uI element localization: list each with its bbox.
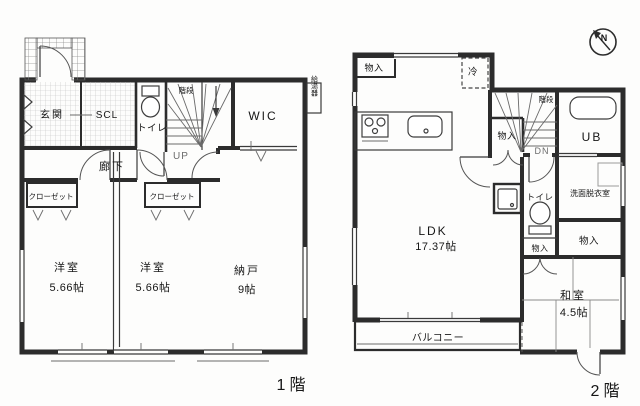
label-western2: 洋室 <box>140 260 166 274</box>
label-balcony: バルコニー <box>412 332 464 344</box>
label-washitsu: 和室 <box>560 288 586 302</box>
bathtub-icon <box>570 97 616 119</box>
label-washitsu-size: 4.5帖 <box>560 306 588 319</box>
label-entrance: 玄関 <box>40 108 64 121</box>
floor1-plan: 玄関 SCL トイレ 階段 UP WIC 給湯器 廊下 クローゼット クローゼッ… <box>17 38 321 394</box>
label-storage-tl: 物入 <box>364 62 383 73</box>
label-fridge: 冷 <box>468 66 478 78</box>
label-water-heater: 給湯器 <box>311 75 319 98</box>
storage-stairs-doors <box>493 150 523 165</box>
compass-icon: N <box>590 29 616 55</box>
label-up: UP <box>173 151 189 162</box>
label-western1-size: 5.66帖 <box>50 281 85 294</box>
entrance-porch <box>25 38 85 80</box>
label-western2-size: 5.66帖 <box>136 281 171 294</box>
vanity-icon <box>494 184 521 213</box>
label-ub: UB <box>582 130 603 144</box>
floor1-title: 1階 <box>277 376 310 394</box>
label-storage-right: 物入 <box>579 235 599 247</box>
stove-icon <box>362 115 388 141</box>
kitchen-counter <box>355 112 452 150</box>
label-ldk: LDK <box>418 224 447 238</box>
floor2-plan: 物入 冷 階段 DN 物入 UB トイレ 洗面脱衣室 物入 物入 LDK 17.… <box>350 51 627 400</box>
label-ldk-size: 17.37帖 <box>415 240 457 253</box>
label-closet-left: クローゼット <box>29 191 74 201</box>
floor1-stairs <box>166 82 231 150</box>
floor-plan-drawing: 玄関 SCL トイレ 階段 UP WIC 給湯器 廊下 クローゼット クローゼッ… <box>0 0 640 406</box>
storage-mid-doors <box>523 258 557 274</box>
ldk-door <box>460 157 490 187</box>
label-western1: 洋室 <box>54 260 80 274</box>
floor2-title: 2階 <box>591 382 624 400</box>
tatami-lines <box>522 257 623 352</box>
label-hallway: 廊下 <box>99 159 125 173</box>
floor-plan-page: 玄関 SCL トイレ 階段 UP WIC 給湯器 廊下 クローゼット クローゼッ… <box>0 0 640 406</box>
label-stairs-2f: 階段 <box>539 94 554 104</box>
label-wic: WIC <box>248 109 277 123</box>
label-toilet-2f: トイレ <box>526 192 553 202</box>
washitsu-door <box>577 348 600 375</box>
label-dn: DN <box>535 146 550 156</box>
compass-north-label: N <box>601 33 608 43</box>
label-storage-room: 納戸 <box>234 264 260 277</box>
label-toilet-1f: トイレ <box>137 123 167 134</box>
closet-right-box <box>145 183 200 220</box>
label-storage-stairs: 物入 <box>497 130 516 141</box>
closet-left-box <box>27 183 77 220</box>
washing-machine-pan <box>598 163 622 186</box>
label-scl: SCL <box>96 110 118 121</box>
label-stairs-1f: 階段 <box>179 85 194 95</box>
label-washroom: 洗面脱衣室 <box>570 188 610 198</box>
floor2-walls <box>355 90 623 322</box>
label-storage-size: 9帖 <box>238 283 256 296</box>
entrance-door <box>40 46 71 77</box>
label-closet-right: クローゼット <box>150 191 195 201</box>
sink-icon <box>408 116 442 137</box>
label-storage-mid: 物入 <box>532 243 549 253</box>
